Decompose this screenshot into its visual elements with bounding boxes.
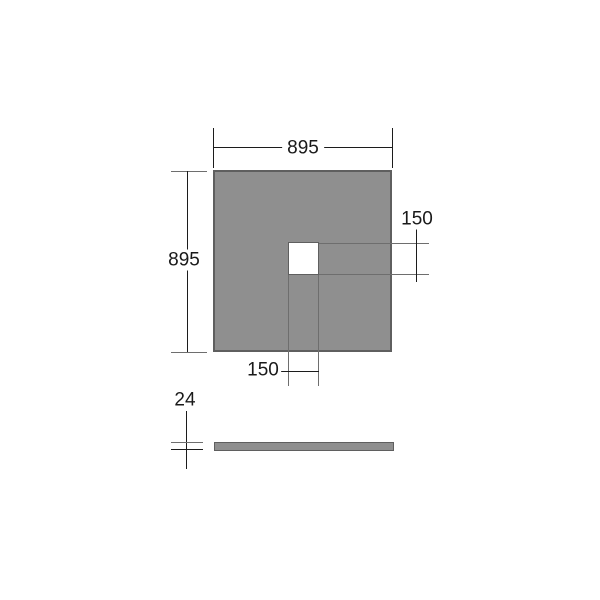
hole-width-dimension-label: 150 (245, 360, 281, 381)
thickness-top-tick (171, 442, 203, 443)
thickness-dimension-label: 24 (172, 390, 197, 411)
top-dimension-left-tick (213, 128, 214, 168)
drawing-canvas: 895 895 150 150 24 (0, 0, 600, 600)
top-dimension-right-tick (392, 128, 393, 168)
hole-left-extension-line (288, 275, 289, 386)
tray-side-view (214, 442, 394, 451)
hole-height-dimension-line (416, 228, 417, 282)
hole-top-extension-line (319, 243, 429, 244)
hole-right-extension-line (318, 275, 319, 386)
hole-bottom-extension-line (319, 274, 429, 275)
hole-width-dimension-line (281, 371, 319, 372)
left-dimension-top-tick (171, 171, 207, 172)
thickness-dimension-line (186, 411, 187, 469)
thickness-bottom-tick (171, 449, 203, 450)
left-dimension-bottom-tick (171, 352, 207, 353)
left-height-dimension-label: 895 (163, 250, 205, 271)
drain-hole (288, 242, 319, 275)
top-width-dimension-label: 895 (282, 138, 324, 159)
hole-height-dimension-label: 150 (399, 209, 435, 230)
